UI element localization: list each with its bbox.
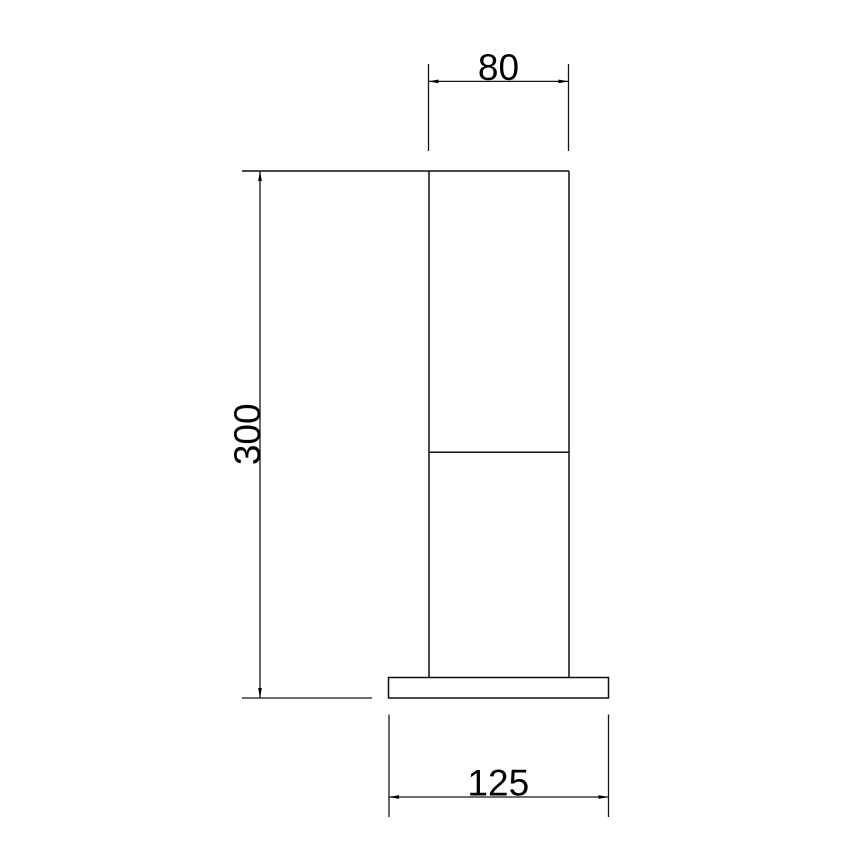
svg-text:125: 125 xyxy=(467,763,529,804)
svg-text:80: 80 xyxy=(478,47,519,88)
svg-text:300: 300 xyxy=(227,403,268,465)
